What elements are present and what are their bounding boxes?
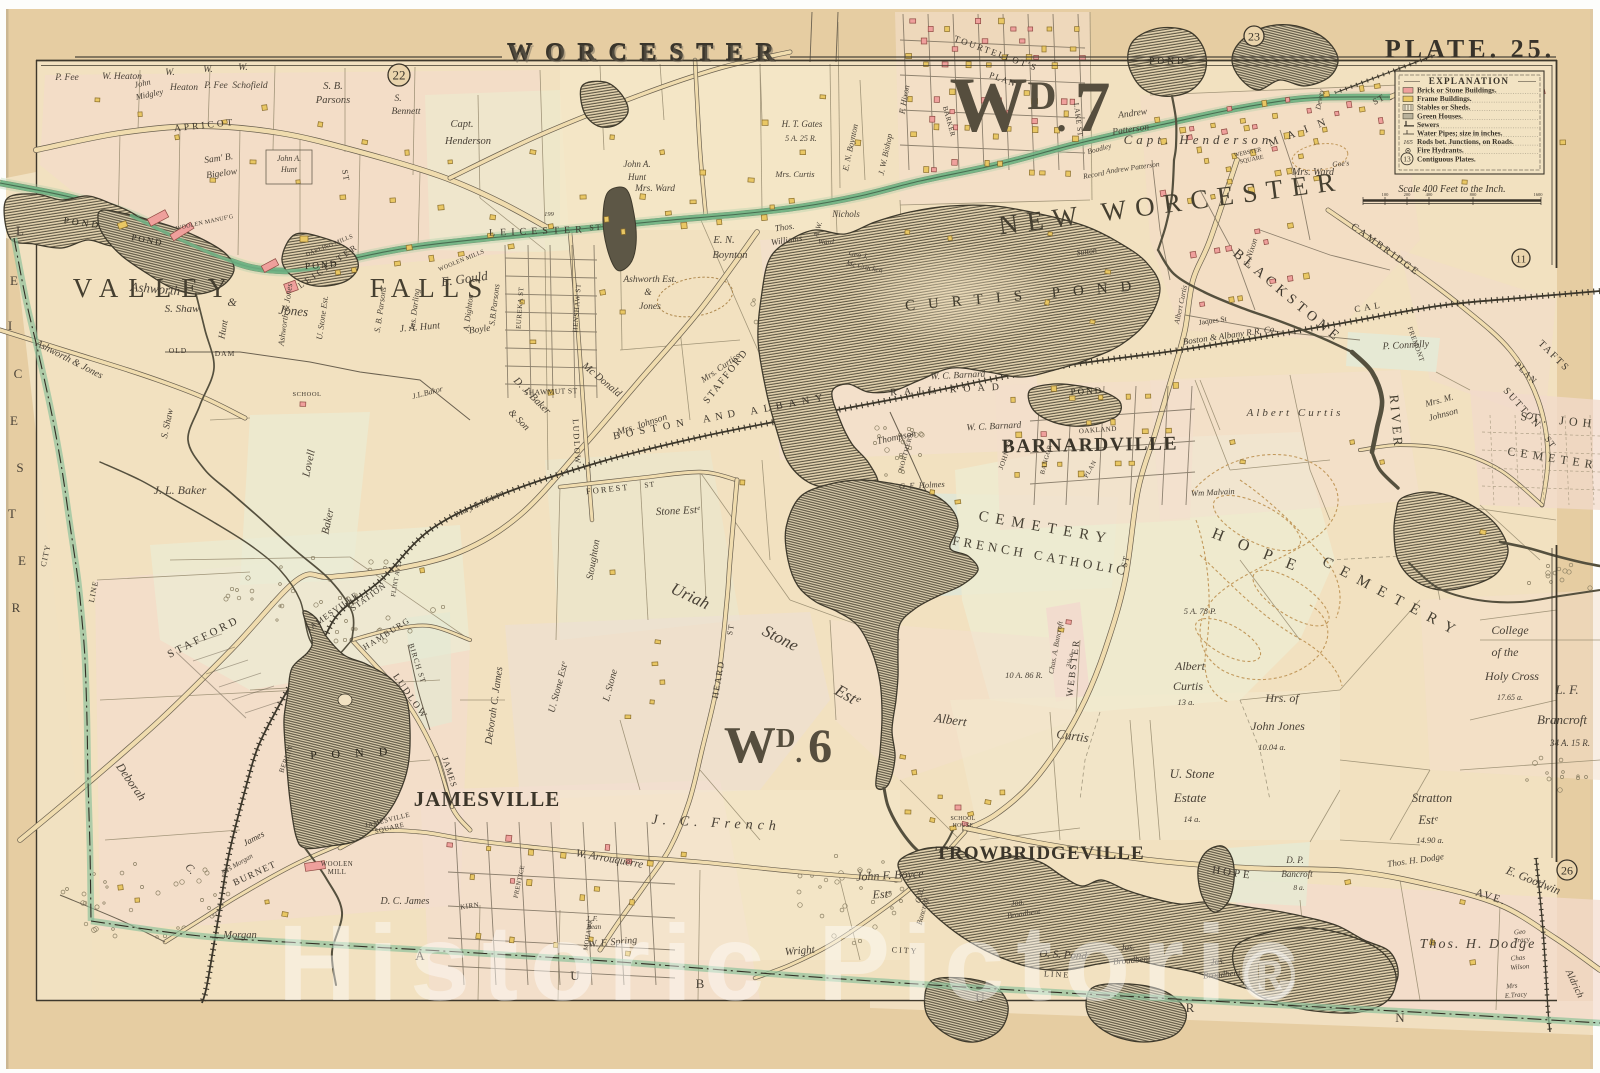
svg-text:S. Shaw: S. Shaw — [165, 303, 201, 315]
svg-text:John A.: John A. — [623, 159, 650, 169]
svg-text:N: N — [1395, 1010, 1405, 1025]
svg-text:800: 800 — [1470, 192, 1478, 197]
svg-text:Hrs. of: Hrs. of — [1264, 691, 1300, 705]
svg-text:10.04 a.: 10.04 a. — [1258, 742, 1286, 752]
svg-text:TROWBRIDGEVILLE: TROWBRIDGEVILLE — [935, 843, 1144, 864]
svg-text:H. T. Gates: H. T. Gates — [781, 119, 823, 129]
svg-text:S. B.: S. B. — [323, 81, 343, 92]
svg-text:John Jones: John Jones — [1251, 719, 1305, 733]
svg-text:Albert: Albert — [1174, 659, 1206, 673]
svg-text:JAMESVILLE: JAMESVILLE — [414, 787, 561, 811]
svg-text:L. F.: L. F. — [1554, 682, 1578, 697]
svg-text:Mrs. Ward: Mrs. Ward — [1291, 167, 1335, 178]
svg-text:SCHOOL: SCHOOL — [951, 816, 976, 822]
svg-text:Mrs. Ward: Mrs. Ward — [634, 184, 675, 194]
svg-text:MILL: MILL — [328, 869, 347, 876]
svg-text:R: R — [12, 600, 21, 615]
svg-text:1600: 1600 — [1534, 192, 1544, 197]
svg-text:PLATE. 25.: PLATE. 25. — [1385, 35, 1555, 64]
svg-text:P. Fee: P. Fee — [54, 73, 79, 83]
svg-text:D. P.: D. P. — [1285, 855, 1304, 865]
svg-text:Curtis: Curtis — [1173, 679, 1203, 693]
svg-text:Stratton: Stratton — [1412, 791, 1452, 805]
svg-text:5 A. 25 R.: 5 A. 25 R. — [785, 134, 817, 143]
svg-text:23: 23 — [1248, 30, 1260, 44]
svg-text:DAM: DAM — [215, 349, 236, 358]
svg-text:Stone Estᵉ: Stone Estᵉ — [655, 504, 701, 518]
svg-text:W.: W. — [165, 68, 174, 78]
svg-text:T: T — [8, 506, 16, 521]
svg-text:199: 199 — [544, 211, 555, 218]
svg-text:ST: ST — [589, 223, 603, 232]
svg-text:Albert Curtis: Albert Curtis — [1246, 407, 1344, 419]
svg-text:Estate: Estate — [1173, 790, 1207, 805]
svg-text:P. Fee: P. Fee — [203, 81, 228, 91]
svg-text:100: 100 — [1382, 192, 1390, 197]
svg-text:College: College — [1491, 623, 1529, 637]
svg-text:13: 13 — [1403, 154, 1411, 163]
svg-text:Nichols: Nichols — [831, 209, 860, 219]
svg-text:Bancroft: Bancroft — [1281, 869, 1313, 879]
svg-text:Hunt: Hunt — [627, 172, 646, 182]
svg-text:W.: W. — [238, 63, 247, 73]
svg-text:I: I — [8, 318, 12, 333]
svg-text:Capt. Henderson: Capt. Henderson — [1124, 132, 1273, 147]
svg-text:Schofield: Schofield — [232, 80, 268, 91]
svg-text:Hunt: Hunt — [280, 165, 298, 174]
svg-text:Tracy: Tracy — [1514, 935, 1531, 944]
svg-text:22: 22 — [393, 68, 406, 83]
svg-text:26: 26 — [1561, 864, 1573, 878]
svg-text:BARNARDVILLE: BARNARDVILLE — [1002, 433, 1179, 457]
svg-text:34 A. 15 R.: 34 A. 15 R. — [1549, 738, 1590, 748]
svg-text:Historic Pictoric: Historic Pictoric — [278, 902, 1310, 1023]
svg-text:17.65 a.: 17.65 a. — [1497, 693, 1523, 702]
svg-text:WORCESTER: WORCESTER — [509, 41, 789, 68]
svg-text:Capt.: Capt. — [450, 119, 473, 130]
svg-text:POND: POND — [1070, 385, 1103, 397]
svg-text:E: E — [10, 273, 18, 288]
svg-text:Chas: Chas — [1510, 953, 1525, 962]
svg-text:Brancroft: Brancroft — [1537, 712, 1587, 727]
svg-text:Jones: Jones — [639, 302, 661, 312]
svg-text:OLD: OLD — [169, 346, 187, 355]
svg-text:E. N.: E. N. — [712, 235, 734, 246]
svg-text:U. Stone: U. Stone — [1170, 766, 1215, 781]
svg-text:S: S — [16, 460, 23, 475]
svg-text:5 A. 78 P.: 5 A. 78 P. — [1184, 606, 1217, 616]
svg-text:Scale 400 Feet to the Inch.: Scale 400 Feet to the Inch. — [1398, 184, 1505, 195]
svg-text:&: & — [227, 295, 237, 309]
svg-text:L: L — [16, 223, 24, 238]
svg-text:EXPLANATION: EXPLANATION — [1429, 76, 1509, 86]
svg-text:400: 400 — [1426, 192, 1434, 197]
svg-text:Henderson: Henderson — [444, 136, 491, 147]
svg-text:E: E — [10, 413, 18, 428]
svg-text:John A.: John A. — [277, 154, 301, 163]
svg-text:165: 165 — [1403, 139, 1413, 146]
svg-text:SCHOOL: SCHOOL — [292, 391, 321, 398]
svg-text:13 a.: 13 a. — [1178, 697, 1195, 707]
svg-text:Heaton: Heaton — [169, 83, 198, 93]
svg-text:Ward: Ward — [818, 237, 834, 246]
svg-text:Ashworth Est.: Ashworth Est. — [622, 275, 676, 285]
svg-text:Contiguous Plates.: Contiguous Plates. — [1417, 154, 1476, 163]
svg-text:Bennett: Bennett — [391, 107, 420, 117]
svg-text:HOUSE: HOUSE — [953, 823, 974, 829]
svg-text:WOOLEN: WOOLEN — [321, 861, 353, 868]
svg-text:Mrs: Mrs — [1505, 982, 1518, 991]
svg-text:ST: ST — [644, 479, 656, 489]
svg-text:Parsons: Parsons — [315, 95, 350, 106]
svg-text:Holy Cross: Holy Cross — [1484, 669, 1539, 683]
svg-text:®: ® — [1243, 936, 1296, 1016]
svg-text:10 A. 86 R.: 10 A. 86 R. — [1005, 670, 1043, 680]
svg-text:ST: ST — [340, 169, 352, 182]
svg-text:Estᵉ: Estᵉ — [871, 886, 892, 901]
svg-text:&: & — [644, 288, 652, 298]
svg-text:S.: S. — [394, 94, 401, 104]
svg-text:Estᵉ: Estᵉ — [1417, 813, 1438, 827]
svg-text:J. L. Baker: J. L. Baker — [154, 483, 207, 497]
svg-text:of the: of the — [1492, 645, 1520, 659]
svg-text:14 a.: 14 a. — [1184, 814, 1201, 824]
svg-text:W.: W. — [203, 65, 212, 75]
svg-text:C: C — [14, 366, 23, 381]
svg-text:Wilson: Wilson — [1510, 962, 1530, 972]
svg-text:Boynton: Boynton — [713, 250, 748, 261]
svg-text:14.90 a.: 14.90 a. — [1416, 835, 1444, 845]
svg-text:200: 200 — [1404, 192, 1412, 197]
svg-text:Mrs. Curtis: Mrs. Curtis — [774, 169, 815, 179]
svg-text:11: 11 — [1516, 254, 1527, 266]
svg-text:Morgan: Morgan — [222, 930, 256, 941]
svg-text:E: E — [18, 553, 26, 568]
svg-text:Goe's: Goe's — [1332, 158, 1350, 168]
svg-text:8 a.: 8 a. — [1293, 883, 1304, 892]
